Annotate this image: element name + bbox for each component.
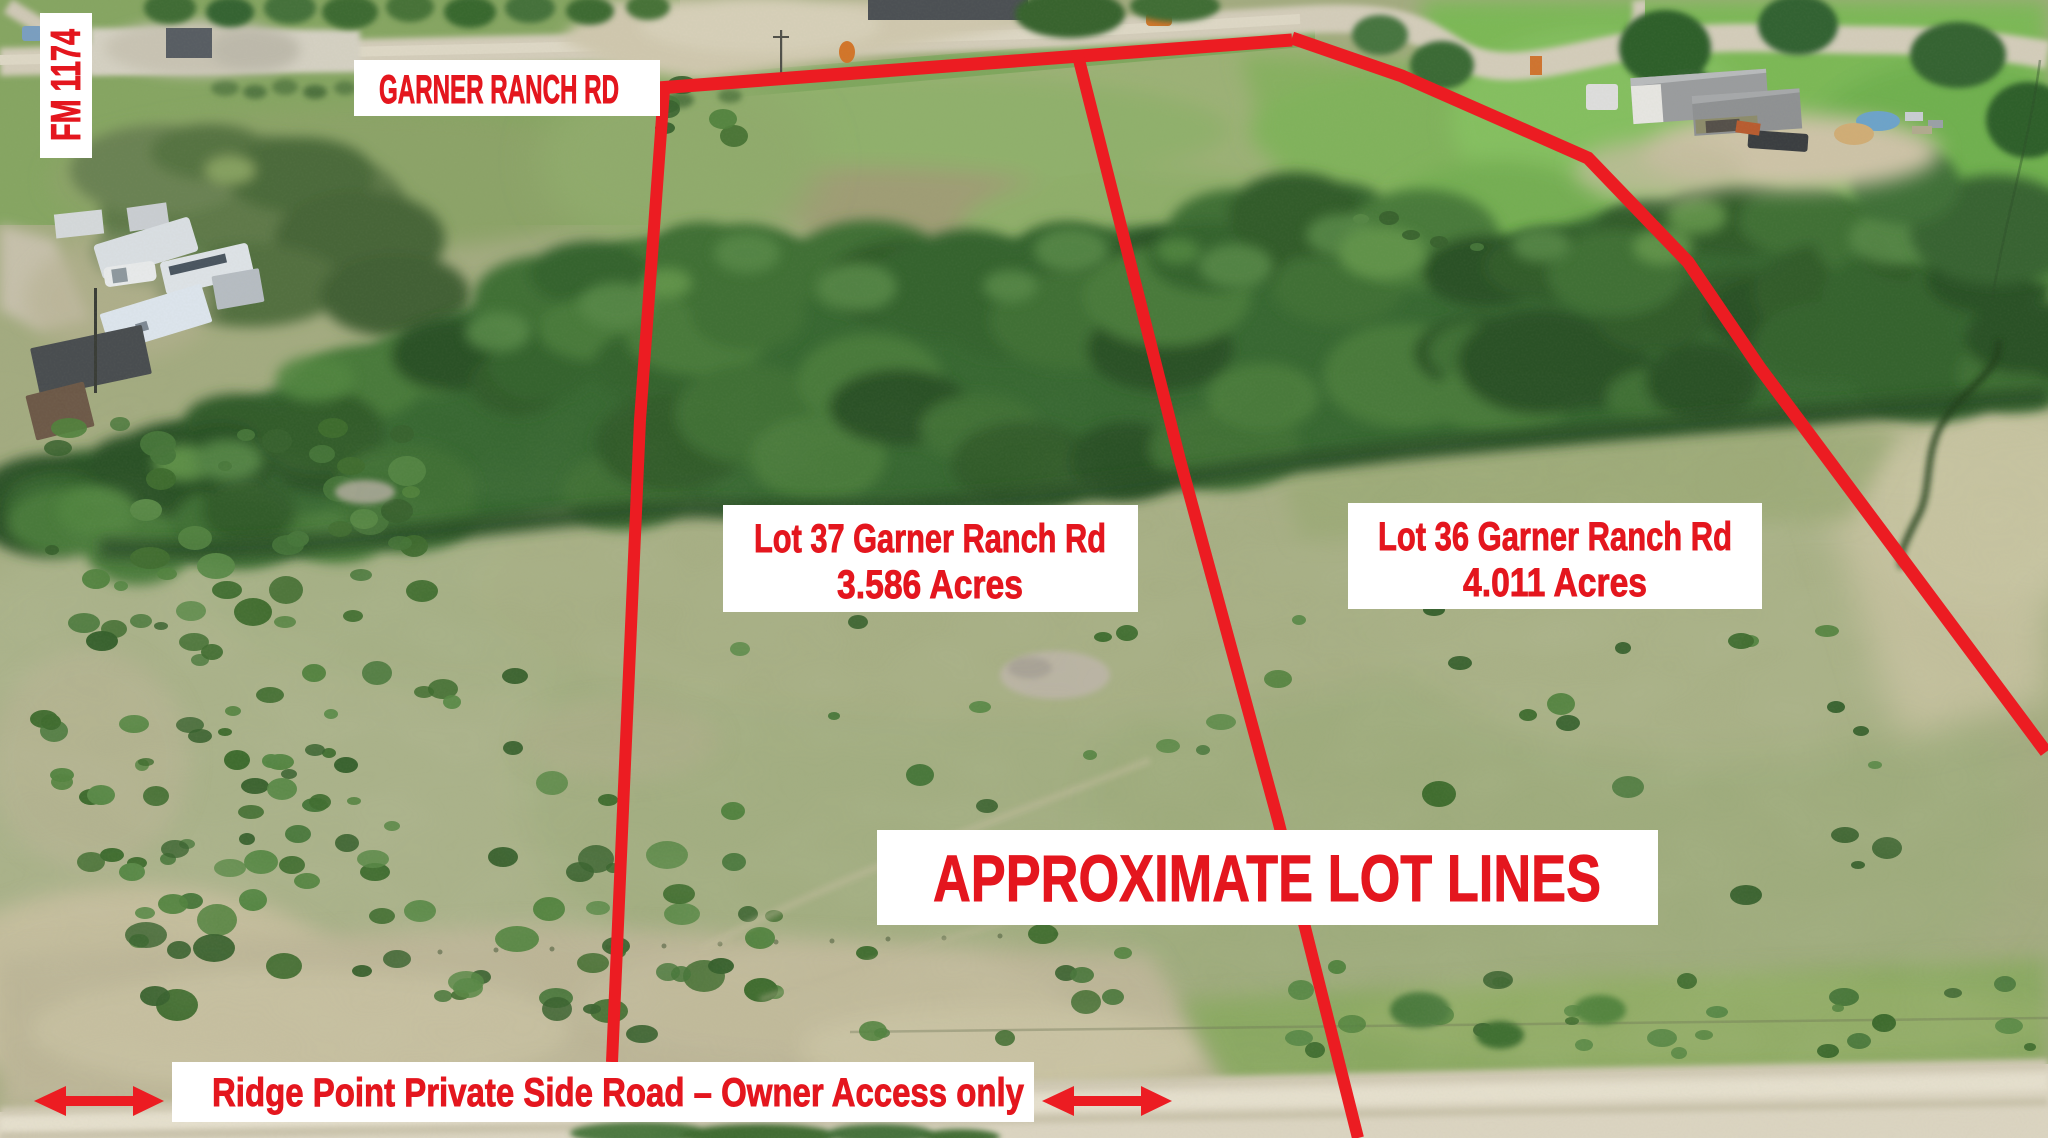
svg-text:GARNER RANCH RD: GARNER RANCH RD bbox=[379, 68, 619, 112]
svg-text:4.011 Acres: 4.011 Acres bbox=[1463, 561, 1647, 605]
svg-text:FM 1174: FM 1174 bbox=[42, 29, 89, 141]
svg-text:Ridge Point Private Side Road: Ridge Point Private Side Road – Owner Ac… bbox=[212, 1071, 1025, 1115]
svg-text:Lot 36 Garner Ranch Rd: Lot 36 Garner Ranch Rd bbox=[1378, 515, 1732, 559]
svg-text:Lot 37 Garner Ranch Rd: Lot 37 Garner Ranch Rd bbox=[754, 517, 1106, 561]
svg-text:3.586 Acres: 3.586 Acres bbox=[837, 563, 1023, 607]
svg-text:APPROXIMATE LOT LINES: APPROXIMATE LOT LINES bbox=[933, 841, 1601, 915]
